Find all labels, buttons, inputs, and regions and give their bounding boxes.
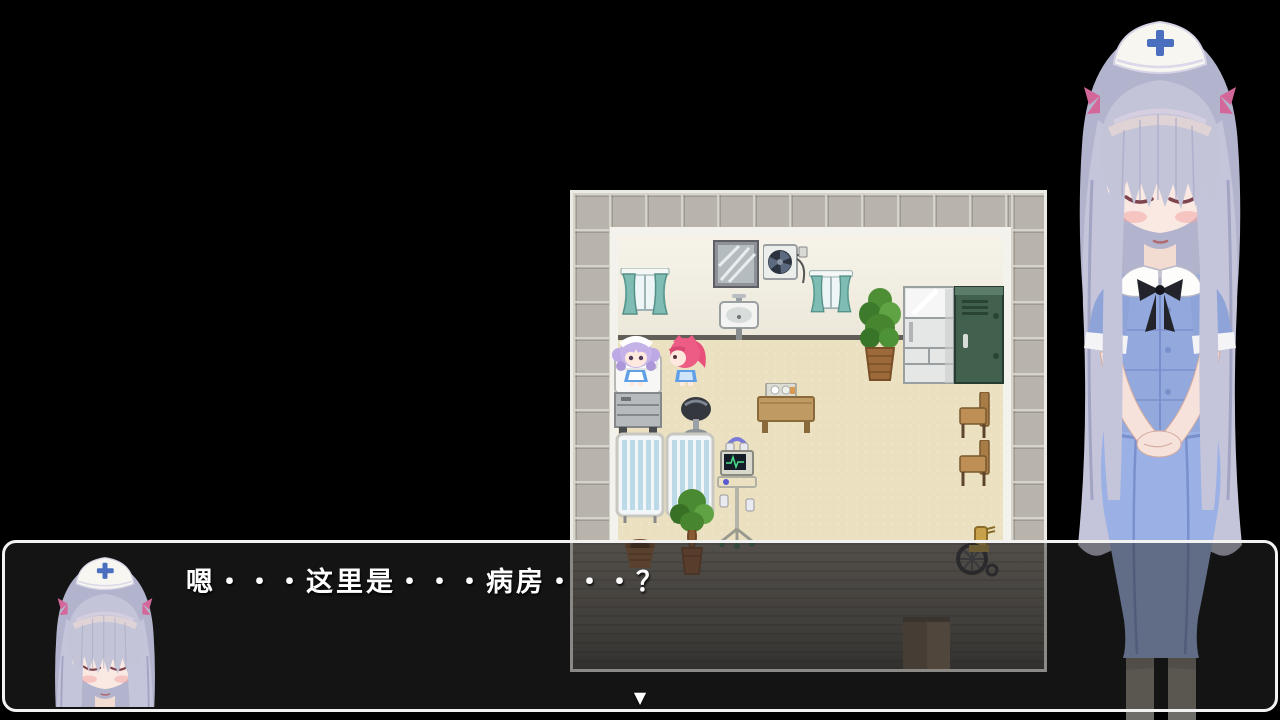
potted-plant (858, 286, 902, 386)
dialogue-text: 嗯・・・这里是・・・病房・・・？ (186, 560, 666, 599)
chair (956, 392, 994, 440)
outer-wall-tiles-left (573, 193, 610, 543)
dialogue-portrait (29, 549, 181, 707)
nurse-face-icon (29, 549, 181, 707)
refrigerator (903, 286, 955, 384)
window-curtains-left (617, 268, 673, 318)
game-screen: 嗯・・・这里是・・・病房・・・？ ▼ (0, 0, 1280, 720)
outer-wall-tiles-top (573, 193, 1044, 227)
mirror (713, 240, 759, 288)
meal-table (756, 383, 816, 435)
dialogue-window[interactable]: 嗯・・・这里是・・・病房・・・？ (2, 540, 1278, 712)
window-curtains-middle (806, 268, 856, 318)
chair (956, 440, 994, 488)
ventilation-fan (763, 243, 809, 289)
privacy-screen (615, 432, 665, 524)
medical-monitor-iv-stand (714, 433, 760, 551)
maid-character-pink (663, 328, 711, 388)
maid-character-lavender (612, 328, 660, 388)
continue-indicator[interactable]: ▼ (626, 690, 654, 706)
wash-basin (718, 294, 760, 342)
green-locker (954, 286, 1004, 384)
